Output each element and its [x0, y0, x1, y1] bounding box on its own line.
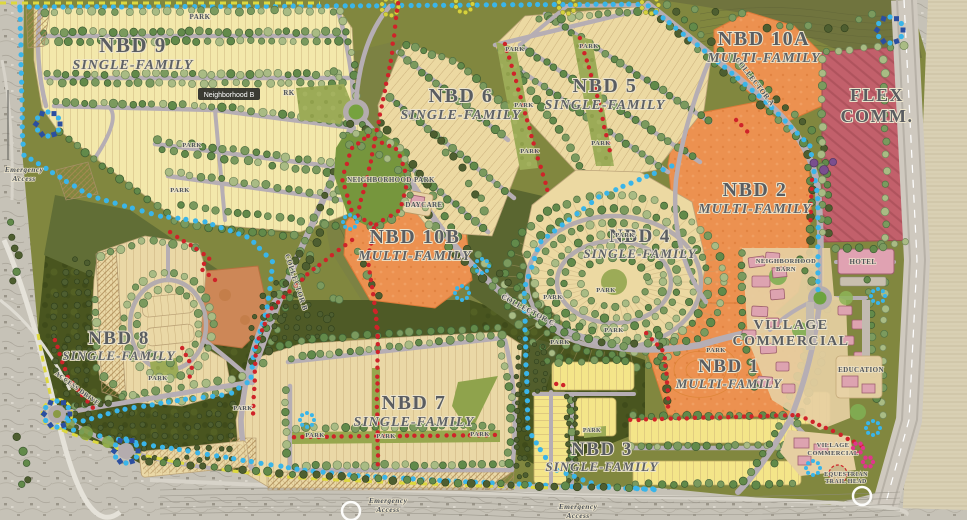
svg-text:VILLAGE: VILLAGE: [817, 442, 850, 449]
svg-text:NBD 10B: NBD 10B: [369, 226, 460, 248]
svg-text:PARK: PARK: [591, 140, 611, 147]
svg-text:SINGLE-FAMILY: SINGLE-FAMILY: [401, 108, 522, 123]
svg-text:PARK: PARK: [514, 102, 534, 109]
svg-text:PARK: PARK: [615, 232, 635, 239]
svg-text:NBD 7: NBD 7: [382, 392, 447, 414]
svg-text:Emergency: Emergency: [368, 496, 408, 505]
svg-text:NBD 2: NBD 2: [723, 179, 788, 201]
svg-text:NBD 5: NBD 5: [573, 75, 638, 97]
svg-text:Access: Access: [375, 505, 399, 514]
svg-text:EDUCATION: EDUCATION: [838, 366, 884, 374]
svg-text:SINGLE-FAMILY: SINGLE-FAMILY: [354, 415, 475, 430]
svg-text:PARK: PARK: [520, 148, 540, 155]
svg-text:Emergency: Emergency: [558, 502, 598, 511]
svg-text:NEIGHBORHOOD: NEIGHBORHOOD: [756, 258, 816, 265]
svg-text:Emergency: Emergency: [4, 165, 44, 174]
svg-text:PARK: PARK: [182, 142, 202, 149]
svg-text:SINGLE-FAMILY: SINGLE-FAMILY: [545, 98, 666, 113]
svg-text:PARK: PARK: [376, 433, 396, 440]
svg-text:COMM.: COMM.: [841, 106, 914, 126]
svg-text:MULTI-FAMILY: MULTI-FAMILY: [675, 376, 782, 391]
svg-text:PARK: PARK: [190, 13, 211, 21]
svg-text:PARK: PARK: [170, 187, 190, 194]
svg-text:NBD 8: NBD 8: [88, 328, 150, 349]
svg-text:PARK: PARK: [148, 375, 168, 382]
svg-text:DAYCARE: DAYCARE: [405, 201, 442, 209]
svg-text:Access: Access: [11, 174, 35, 183]
svg-text:BARN: BARN: [776, 266, 796, 273]
svg-text:PARK: PARK: [470, 431, 490, 438]
svg-text:TRAIL HEAD: TRAIL HEAD: [825, 479, 867, 485]
svg-text:NBD 10A: NBD 10A: [718, 28, 810, 50]
svg-text:COMMERCIAL: COMMERCIAL: [733, 334, 850, 349]
svg-text:NBD 1: NBD 1: [698, 356, 760, 377]
svg-text:Neighborhood B: Neighborhood B: [204, 92, 255, 99]
svg-text:PARK: PARK: [233, 405, 253, 412]
svg-text:NBD 9: NBD 9: [99, 33, 167, 57]
svg-text:PARK: PARK: [583, 428, 601, 434]
svg-text:MULTI-FAMILY: MULTI-FAMILY: [697, 202, 812, 217]
svg-text:PARK: PARK: [305, 432, 325, 439]
svg-text:SINGLE-FAMILY: SINGLE-FAMILY: [583, 246, 696, 261]
svg-text:FLEX: FLEX: [850, 85, 904, 105]
svg-text:NBD 6: NBD 6: [429, 85, 494, 107]
svg-text:PARK: PARK: [505, 46, 525, 53]
svg-text:VILLAGE: VILLAGE: [753, 318, 828, 333]
svg-text:MULTI-FAMILY: MULTI-FAMILY: [357, 249, 472, 264]
svg-text:Access: Access: [565, 511, 589, 520]
svg-text:COMMERCIAL: COMMERCIAL: [807, 450, 859, 457]
svg-text:PARK: PARK: [706, 347, 726, 354]
svg-text:SINGLE-FAMILY: SINGLE-FAMILY: [73, 58, 194, 73]
svg-text:HOTEL: HOTEL: [850, 258, 877, 266]
svg-text:EQUESTRIAN: EQUESTRIAN: [824, 472, 868, 478]
svg-text:PARK: PARK: [579, 43, 599, 50]
svg-text:SINGLE-FAMILY: SINGLE-FAMILY: [62, 348, 175, 363]
svg-text:PARK: PARK: [543, 294, 563, 301]
svg-text:PARK: PARK: [604, 327, 624, 334]
svg-text:PARK: PARK: [550, 339, 570, 346]
svg-text:MULTI-FAMILY: MULTI-FAMILY: [706, 51, 821, 66]
svg-text:PARK: PARK: [596, 287, 616, 294]
svg-text:NEIGHBORHOOD PARK: NEIGHBORHOOD PARK: [347, 176, 435, 184]
svg-text:SINGLE-FAMILY: SINGLE-FAMILY: [545, 459, 658, 474]
svg-text:RK: RK: [283, 89, 294, 97]
svg-text:NBD 3: NBD 3: [571, 439, 633, 460]
